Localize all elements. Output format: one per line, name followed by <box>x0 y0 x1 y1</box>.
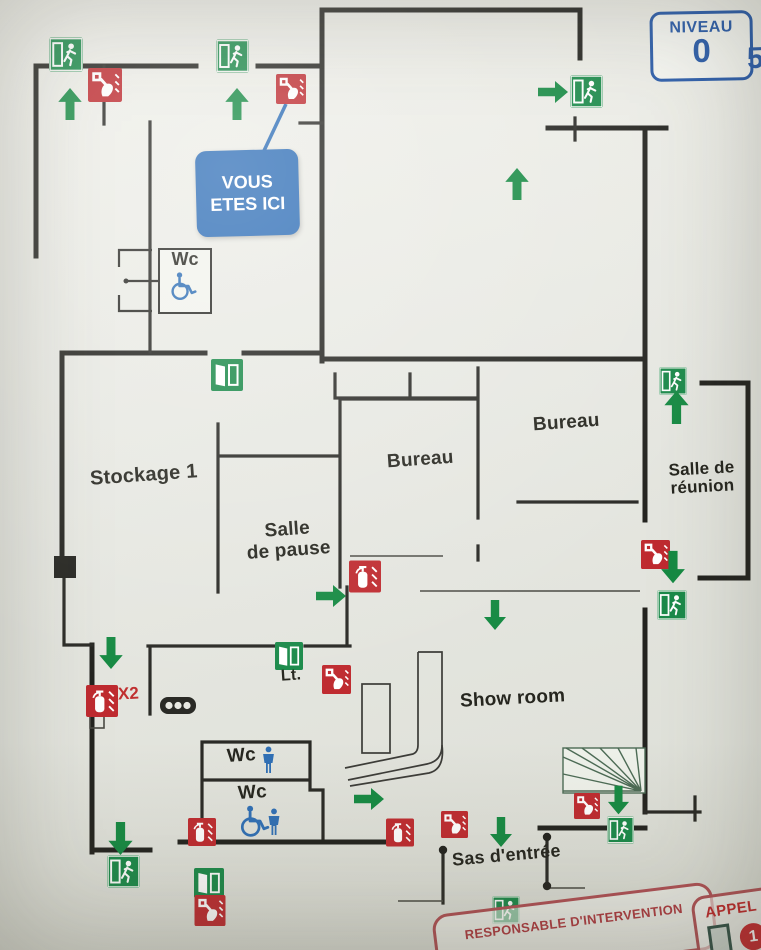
showroom-display-wall <box>345 652 442 786</box>
stairs-icon <box>563 748 645 793</box>
arrow-down-icon <box>660 549 686 585</box>
fire-extinguisher-icon <box>188 816 216 848</box>
pillar <box>54 556 76 578</box>
extinguisher-count-label: X2 <box>117 683 139 704</box>
exit-sign-icon <box>607 816 634 844</box>
fire-extinguisher-icon <box>349 560 381 593</box>
room-label-local-technique: Lt. <box>280 666 301 685</box>
arrow-down-icon <box>482 600 508 630</box>
door-swing <box>119 250 158 311</box>
you-are-here-pointer-line <box>262 104 286 155</box>
fixture-icon <box>160 697 196 714</box>
room-label-wc-accessible: Wc <box>237 781 267 805</box>
arrow-right-icon <box>354 786 384 812</box>
arrow-up-icon <box>57 88 83 120</box>
room-label-wc-male: Wc <box>226 744 256 768</box>
emergency-door-icon <box>209 359 245 391</box>
room-label-salle-de-reunion: Salle de réunion <box>649 457 755 499</box>
room-label-salle-de-pause: Salle de pause <box>235 516 342 564</box>
exit-sign-icon <box>657 588 687 622</box>
fire-extinguisher-icon <box>86 684 118 718</box>
arrow-right-icon <box>538 79 568 105</box>
arrow-up-icon <box>224 88 250 120</box>
appel-secours-text: APPEL S <box>704 889 761 922</box>
fire-call-point-icon <box>322 665 351 694</box>
wc-top-label: Wc <box>160 250 210 270</box>
exit-sign-icon <box>49 37 83 72</box>
arrow-up-icon <box>504 168 530 200</box>
you-are-here-line1: VOUS <box>195 169 299 194</box>
niveau-level: 0 <box>653 36 750 66</box>
fire-extinguisher-icon <box>386 817 414 848</box>
fire-call-point-icon <box>574 792 600 820</box>
arrow-down-icon <box>98 637 124 669</box>
emergency-door-icon <box>191 868 227 898</box>
exit-sign-icon <box>105 855 142 888</box>
arrow-right-icon <box>316 583 346 609</box>
edge-partial-text: 5 <box>746 42 761 77</box>
person-icon <box>266 808 282 836</box>
room-label-bureau-right: Bureau <box>532 410 600 437</box>
arrow-down-icon <box>488 817 514 847</box>
arrow-down-icon <box>607 785 630 815</box>
niveau-box: NIVEAU 0 <box>649 10 753 82</box>
fire-call-point-icon <box>441 810 468 839</box>
wheelchair-icon <box>167 270 199 302</box>
walls-thick <box>36 10 748 852</box>
exit-sign-icon <box>570 74 603 109</box>
door-pictogram-icon <box>707 923 733 950</box>
fire-call-point-icon <box>88 68 122 102</box>
you-are-here-line2: ETES ICI <box>196 192 300 217</box>
person-icon <box>260 746 277 774</box>
evacuation-plan-photo: Wc Stockage 1 Salle de pause Bureau Bure… <box>0 0 761 950</box>
number-badge: 1 <box>738 921 761 950</box>
you-are-here-box: VOUS ETES ICI <box>195 149 300 238</box>
room-label-bureau-left: Bureau <box>386 447 454 474</box>
exit-sign-icon <box>216 39 249 73</box>
arrow-up-icon <box>663 391 690 424</box>
fire-call-point-icon <box>275 74 307 104</box>
arrow-down-icon <box>107 822 134 855</box>
fire-call-point-icon <box>192 895 228 926</box>
